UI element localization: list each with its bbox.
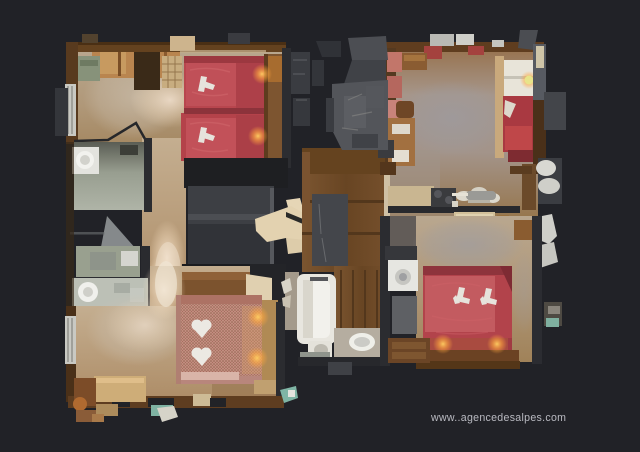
svg-text:www..agencedesalpes.com: www..agencedesalpes.com <box>430 412 566 424</box>
